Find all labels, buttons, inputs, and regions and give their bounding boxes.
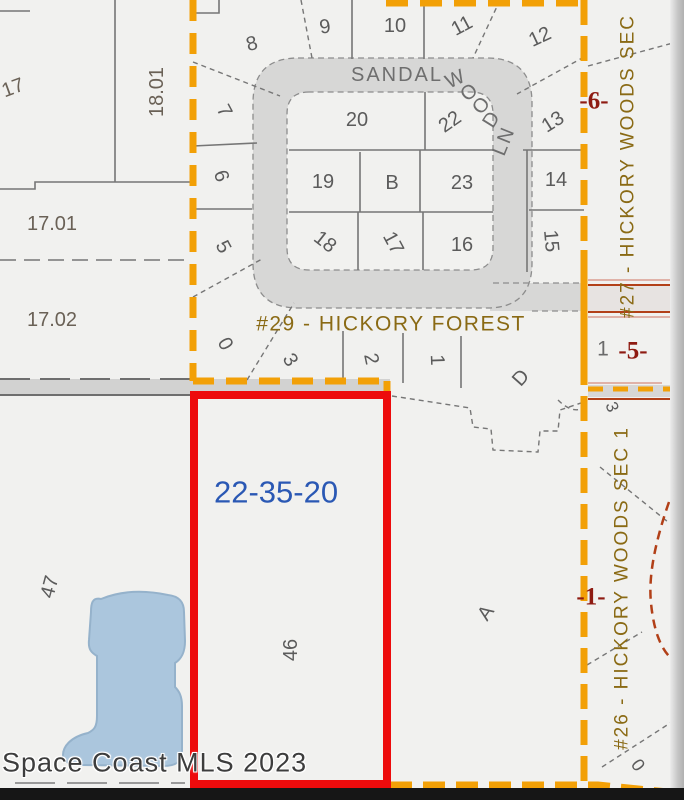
lot-label-16: 16 [451, 235, 473, 255]
bottom-black-bar [0, 788, 684, 800]
right-edge-strip [670, 0, 684, 789]
parcel-label-47: 47 [37, 574, 62, 601]
lot-label-23: 23 [451, 173, 473, 193]
roads [0, 58, 586, 396]
parcel-id-label: 22-35-20 [214, 477, 338, 508]
section-marker-6: -6- [579, 89, 608, 114]
lot-label-19: 19 [312, 172, 334, 192]
section-marker-1: -1- [576, 585, 605, 610]
lot-label-14: 14 [545, 170, 567, 190]
parcel-label-17-02: 17.02 [27, 310, 77, 330]
lot-label-15: 15 [540, 229, 562, 253]
street-label-sandalwood-1: SANDAL [351, 65, 443, 85]
watermark: Space Coast MLS 2023 [2, 750, 307, 777]
parcel-label-18-01: 18.01 [147, 67, 167, 117]
lot-label-b: B [385, 173, 398, 193]
pond [63, 592, 185, 766]
parcel-label-17-01: 17.01 [27, 214, 77, 234]
section-marker-5: -5- [618, 339, 647, 364]
subdivision-label-hickory-woods-sec1: #26 - HICKORY WOODS SEC 1 [613, 426, 632, 750]
highlight-rectangle [194, 395, 387, 784]
lot-label-1: 1 [427, 354, 447, 366]
parcel-label-46: 46 [281, 639, 301, 661]
map-linework [0, 0, 684, 800]
section-marker-5-prefix: 1 [597, 339, 609, 360]
subdivision-label-hickory-forest: #29 - HICKORY FOREST [256, 314, 526, 335]
plat-map: 8 9 10 11 12 13 14 15 20 22 19 B 23 18 1… [0, 0, 684, 800]
lot-label-10: 10 [384, 16, 406, 36]
subdivision-label-hickory-woods-sec: #27 - HICKORY WOODS SEC [619, 14, 638, 318]
lot-label-20: 20 [346, 110, 368, 130]
